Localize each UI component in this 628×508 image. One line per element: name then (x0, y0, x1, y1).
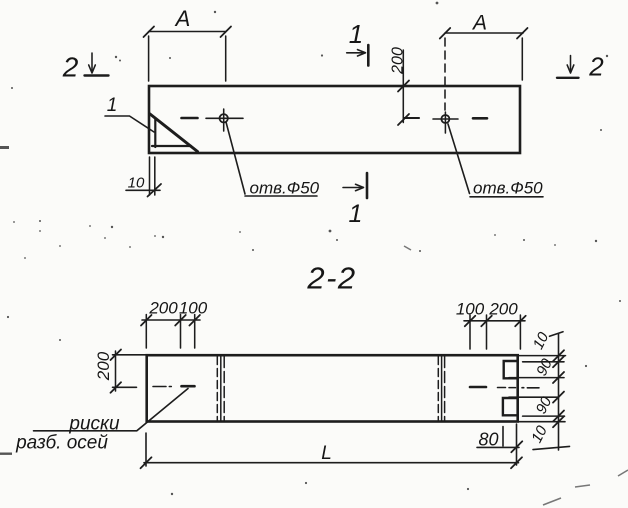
svg-text:200: 200 (488, 300, 518, 319)
svg-text:2: 2 (62, 52, 79, 83)
svg-text:200: 200 (94, 351, 113, 381)
svg-text:1: 1 (107, 95, 118, 116)
svg-text:2: 2 (588, 52, 604, 82)
svg-text:200: 200 (390, 47, 407, 75)
svg-text:отв.Ф50: отв.Ф50 (250, 179, 320, 198)
svg-text:100: 100 (456, 300, 485, 319)
svg-text:1: 1 (349, 200, 363, 228)
svg-text:2-2: 2-2 (306, 261, 356, 296)
svg-text:A: A (471, 12, 487, 35)
svg-text:10: 10 (128, 175, 145, 192)
svg-text:отв.Ф50: отв.Ф50 (473, 179, 543, 198)
svg-text:200: 200 (148, 299, 178, 318)
svg-text:разб. осей: разб. осей (15, 433, 108, 454)
svg-text:L: L (321, 443, 332, 464)
svg-text:100: 100 (179, 299, 208, 318)
svg-text:риски: риски (68, 414, 120, 435)
svg-text:80: 80 (478, 430, 498, 450)
svg-text:1: 1 (349, 19, 363, 49)
svg-text:A: A (174, 6, 191, 31)
